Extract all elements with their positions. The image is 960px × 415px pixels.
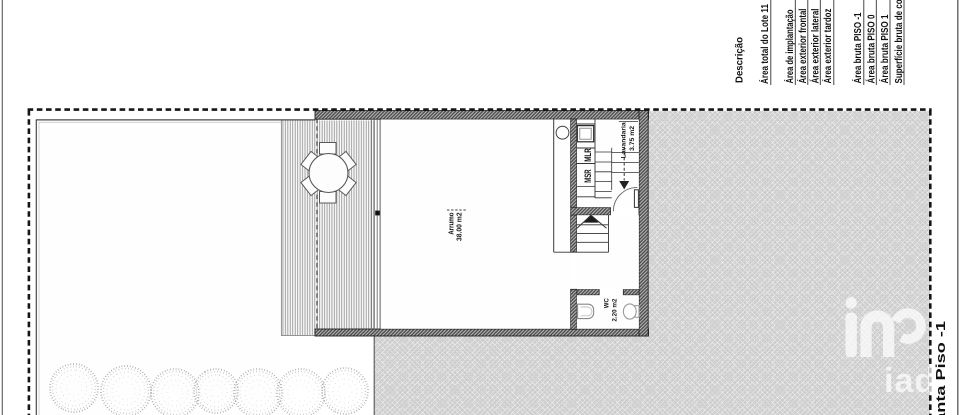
svg-text:2.20 m2: 2.20 m2 bbox=[611, 298, 618, 321]
svg-text:Área exterior tardoz: Área exterior tardoz bbox=[821, 9, 834, 84]
svg-text:Área total do Lote 11: Área total do Lote 11 bbox=[758, 4, 771, 84]
svg-text:Área exterior lateral: Área exterior lateral bbox=[808, 8, 821, 83]
svg-text:Arrumo: Arrumo bbox=[448, 212, 455, 234]
svg-text:Área bruta PISO 1: Área bruta PISO 1 bbox=[878, 14, 891, 83]
svg-text:38.00 m2: 38.00 m2 bbox=[456, 212, 463, 241]
svg-text:Área exterior frontal: Área exterior frontal bbox=[796, 8, 809, 83]
svg-text:MLR: MLR bbox=[583, 148, 593, 162]
svg-text:WC: WC bbox=[603, 298, 610, 308]
svg-text:Área de implantação: Área de implantação bbox=[783, 10, 796, 84]
svg-text:iad: iad bbox=[884, 362, 936, 400]
svg-text:Área bruta PISO 0: Área bruta PISO 0 bbox=[864, 14, 877, 83]
svg-text:3.75 m2: 3.75 m2 bbox=[629, 126, 636, 151]
svg-text:Superfície bruta de construção: Superfície bruta de construção bbox=[894, 0, 905, 84]
svg-text:Planta Piso -1: Planta Piso -1 bbox=[933, 321, 948, 415]
svg-text:Descrição: Descrição bbox=[735, 37, 746, 83]
svg-text:Lavandaria: Lavandaria bbox=[621, 122, 628, 158]
svg-text:Área bruta PISO -1: Área bruta PISO -1 bbox=[851, 12, 864, 83]
svg-text:MSR: MSR bbox=[583, 169, 593, 183]
